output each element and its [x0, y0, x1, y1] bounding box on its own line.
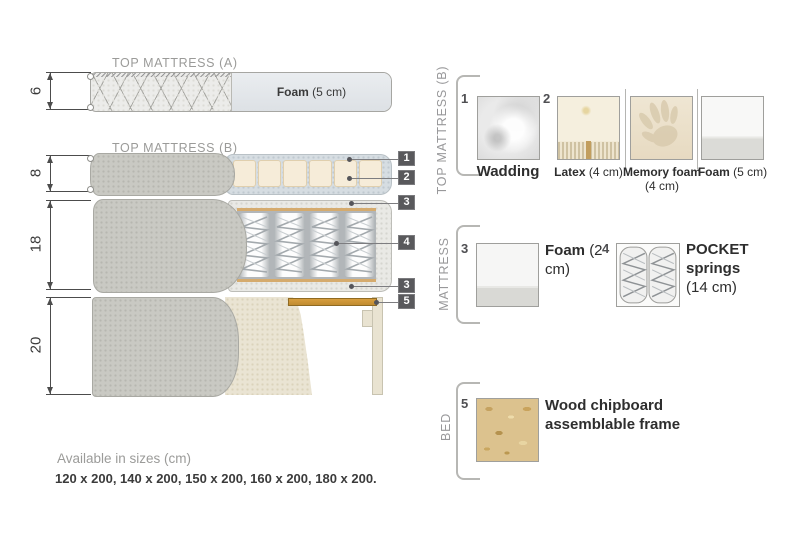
- quilted-topper-graphic: [91, 73, 232, 111]
- callout-line-5: [379, 302, 398, 303]
- callout-tag-3-top: 3: [398, 195, 415, 210]
- legend-num-1: 1: [461, 91, 468, 106]
- latex-cell: [359, 160, 382, 187]
- legend-num-3: 3: [461, 241, 468, 256]
- latex-layer-graphic: [233, 160, 382, 187]
- bed-frame-post: [372, 297, 383, 395]
- foam-layer-graphic: Foam (5 cm): [232, 73, 391, 111]
- legend-section-top-mattress-b: TOP MATTRESS (B): [435, 66, 449, 195]
- available-sizes-title: Available in sizes (cm): [57, 451, 191, 466]
- dimension-6-tick-top: [46, 72, 91, 73]
- arrow-down-icon: [47, 102, 53, 109]
- legend-num-2: 2: [543, 91, 550, 106]
- mattress-construction-diagram: 6 8 18 20 TOP MATTRESS (A): [0, 0, 800, 533]
- dimension-18-arrow-line: [50, 201, 51, 289]
- latex-cell: [283, 160, 306, 187]
- legend-num-5: 5: [461, 396, 468, 411]
- arrow-down-icon: [47, 184, 53, 191]
- legend-section-bed: BED: [439, 413, 453, 441]
- wood-slat-graphic: [288, 298, 377, 306]
- pocket-springs-image: [616, 243, 680, 307]
- callout-tag-2: 2: [398, 170, 415, 185]
- foam-edge-line-top: [237, 208, 376, 211]
- latex-cell: [258, 160, 281, 187]
- callout-line-3-top: [354, 203, 398, 204]
- latex-cell: [233, 160, 256, 187]
- dimension-18-value: 18: [28, 236, 45, 253]
- piping-dot: [87, 186, 94, 193]
- foam-5cm-image: [701, 96, 764, 160]
- legend-num-4: 4: [602, 241, 609, 256]
- pocket-springs-icon: [617, 244, 679, 306]
- legend-section-mattress: MATTRESS: [437, 237, 451, 311]
- wadding-image: [477, 96, 540, 160]
- dimension-6-value: 6: [28, 87, 45, 95]
- foam-5cm-caption: Foam (5 cm): [695, 165, 770, 179]
- available-sizes-list: 120 x 200, 140 x 200, 150 x 200, 160 x 2…: [55, 471, 377, 486]
- arrow-up-icon: [47, 156, 53, 163]
- dimension-20-tick-top: [46, 297, 91, 298]
- callout-line-2: [352, 178, 398, 179]
- dimension-20-tick-bottom: [46, 394, 91, 395]
- dimension-18-tick-top: [46, 200, 91, 201]
- handprint-icon: [631, 97, 692, 159]
- mattress-cover: [93, 199, 247, 293]
- latex-notch: [586, 141, 591, 159]
- dimension-8-tick-top: [46, 155, 91, 156]
- quilt-ruffle-edge: [91, 73, 231, 77]
- top-mattress-a-title: TOP MATTRESS (A): [112, 56, 238, 70]
- callout-line-1: [352, 159, 398, 160]
- pocket-spring-graphic: [274, 213, 305, 277]
- foam-edge-line-bottom: [237, 279, 376, 282]
- callout-tag-5: 5: [398, 294, 415, 309]
- latex-cell: [334, 160, 357, 187]
- callout-line-4: [339, 243, 398, 244]
- arrow-up-icon: [47, 201, 53, 208]
- legend-separator: [697, 89, 698, 169]
- bed-cover: [92, 297, 239, 397]
- foam-layer-label: Foam (5 cm): [277, 85, 346, 99]
- arrow-up-icon: [47, 298, 53, 305]
- top-mattress-b-cover: [90, 153, 235, 196]
- arrow-up-icon: [47, 73, 53, 80]
- arrow-down-icon: [47, 387, 53, 394]
- dimension-6-tick-bottom: [46, 109, 91, 110]
- frame-caption: Wood chipboard assemblable frame: [545, 397, 705, 435]
- latex-image: [557, 96, 620, 160]
- latex-caption: Latex (4 cm): [551, 165, 626, 179]
- piping-dot: [87, 155, 94, 162]
- dimension-8-value: 8: [28, 169, 45, 177]
- pocket-springs-caption: POCKET springs (14 cm): [686, 241, 764, 297]
- callout-tag-4: 4: [398, 235, 415, 250]
- dimension-8-tick-bottom: [46, 191, 91, 192]
- legend-separator: [625, 89, 626, 169]
- latex-cell: [309, 160, 332, 187]
- callout-line-3-bottom: [354, 286, 398, 287]
- foam-2cm-image: [476, 243, 539, 307]
- arrow-down-icon: [47, 282, 53, 289]
- top-mattress-a-graphic: Foam (5 cm): [90, 72, 392, 112]
- dimension-20-value: 20: [28, 337, 45, 354]
- dimension-20-arrow-line: [50, 298, 51, 394]
- wadding-caption: Wadding: [463, 163, 553, 181]
- pocket-spring-graphic: [344, 213, 375, 277]
- callout-tag-3-bottom: 3: [398, 278, 415, 293]
- dimension-18-tick-bottom: [46, 289, 91, 290]
- piping-dot: [87, 104, 94, 111]
- memory-foam-caption: Memory foam (4 cm): [622, 165, 702, 194]
- callout-tag-1: 1: [398, 151, 415, 166]
- piping-dot: [87, 73, 94, 80]
- bed-frame-notch: [362, 310, 373, 327]
- wood-chipboard-image: [476, 398, 539, 462]
- memory-foam-image: [630, 96, 693, 160]
